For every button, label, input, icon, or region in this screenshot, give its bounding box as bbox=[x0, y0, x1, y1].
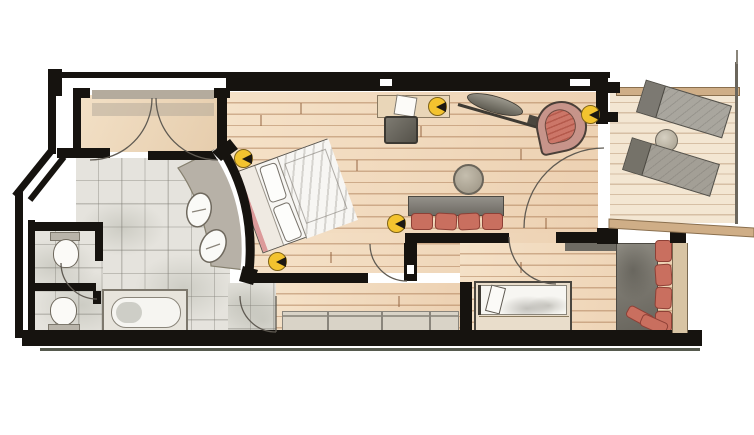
door-arcs bbox=[61, 98, 604, 332]
floor-lamp-icon bbox=[387, 214, 406, 233]
bedside-lamp-icon bbox=[234, 149, 253, 168]
wall-angled-inner bbox=[30, 157, 64, 200]
door-arc-balcony bbox=[524, 148, 604, 228]
walls-overlay bbox=[0, 0, 754, 435]
desk-lamp-icon bbox=[428, 97, 447, 116]
door-arc-passage bbox=[370, 244, 407, 281]
door-arc-entry-right bbox=[156, 98, 218, 160]
door-arc-entry-left bbox=[90, 98, 152, 160]
door-arc-wc bbox=[61, 263, 97, 299]
wall-angled-outer bbox=[15, 150, 52, 196]
balcony-parapet-bottom bbox=[609, 219, 754, 237]
door-arc-kids bbox=[509, 237, 556, 284]
door-arc-bathroom bbox=[240, 296, 276, 332]
bedside-lamp-icon bbox=[268, 252, 287, 271]
floorplan-canvas bbox=[0, 0, 754, 435]
reading-lamp-icon bbox=[581, 105, 600, 124]
